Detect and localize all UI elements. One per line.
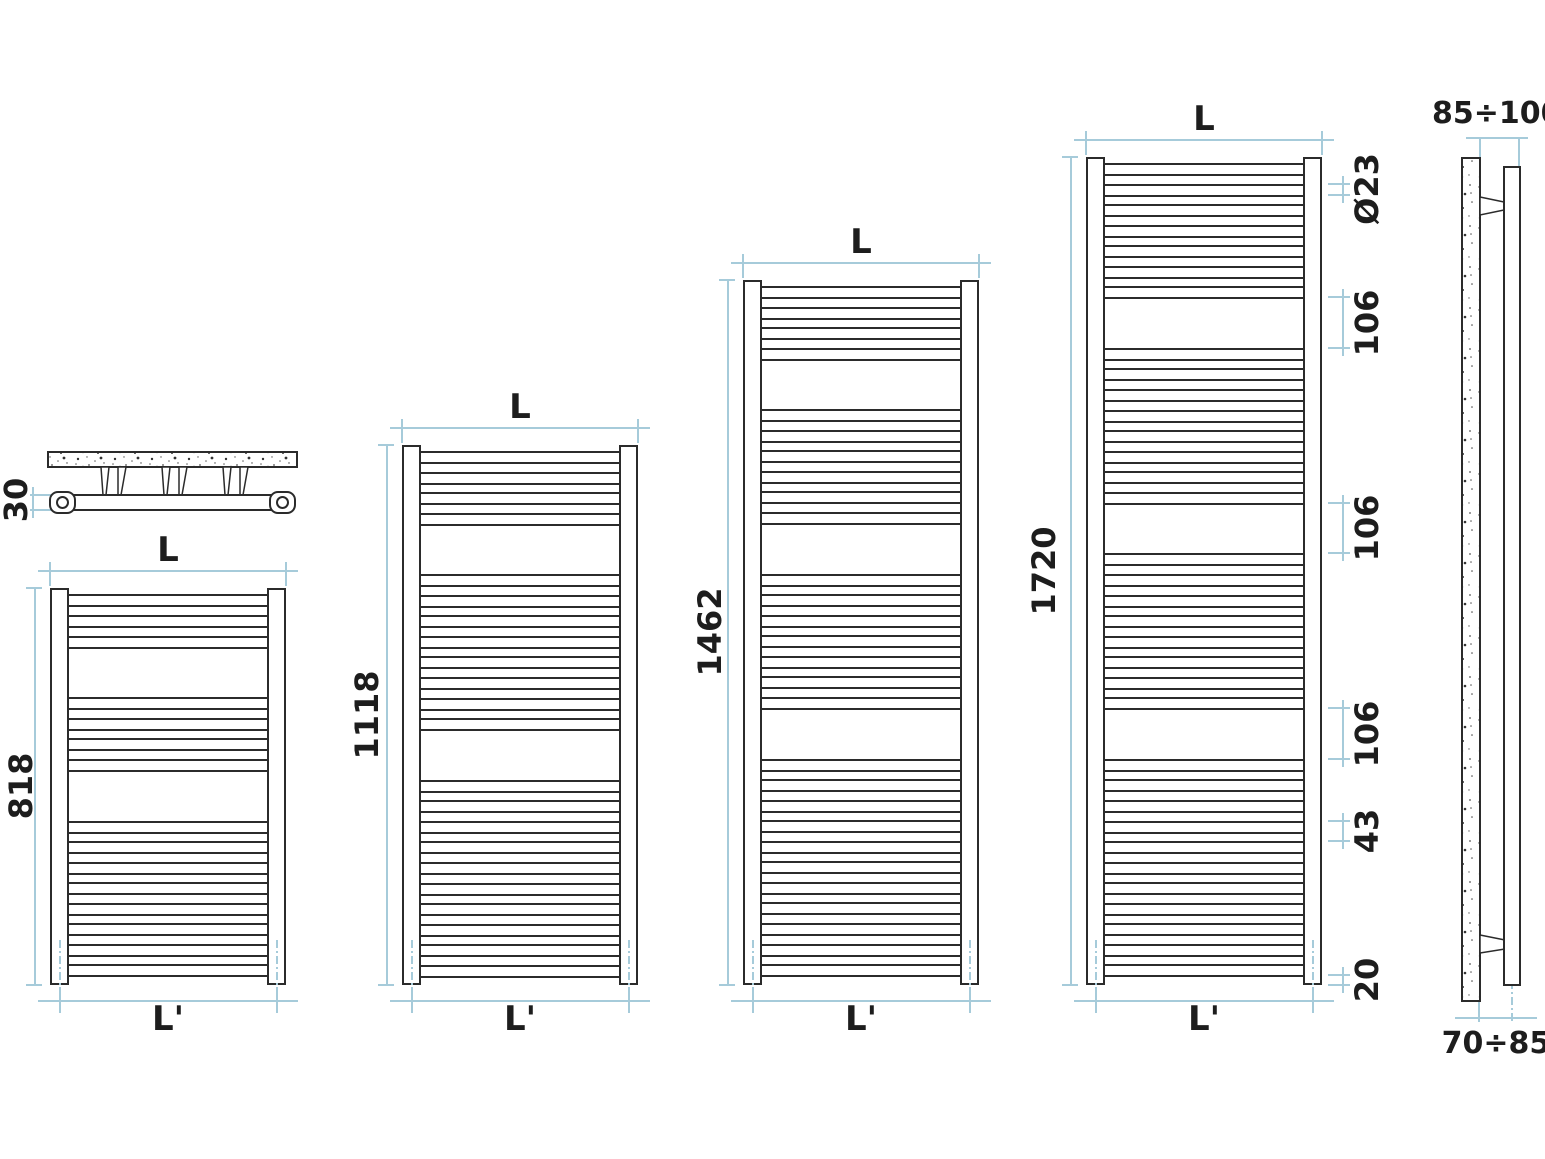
tube-line xyxy=(1103,626,1305,628)
height-dim-line xyxy=(1070,157,1072,985)
tube-line xyxy=(760,902,962,904)
plan-view-wall-mount xyxy=(0,440,320,540)
tube-line xyxy=(1103,800,1305,802)
tube-line xyxy=(760,461,962,463)
tube-line xyxy=(419,873,621,875)
tube-line xyxy=(760,800,962,802)
tube-line xyxy=(1103,779,1305,781)
tube-line xyxy=(67,708,269,710)
left-column xyxy=(50,588,69,985)
tube-line xyxy=(67,718,269,720)
tube-line xyxy=(67,903,269,905)
tube-line xyxy=(67,749,269,751)
tube-line xyxy=(67,934,269,936)
detail-dim-tick xyxy=(1328,194,1350,196)
tube-line xyxy=(419,677,621,679)
height-dim-tick xyxy=(26,587,42,589)
tube-line xyxy=(1103,677,1305,679)
tube-line xyxy=(760,297,962,299)
detail-dim-line xyxy=(1342,700,1344,767)
tube-line xyxy=(1103,553,1305,555)
tube-line xyxy=(67,770,269,772)
tube-line xyxy=(419,780,621,782)
tube-line xyxy=(419,903,621,905)
tube-line xyxy=(760,944,962,946)
tube-line xyxy=(1103,482,1305,484)
tube-line xyxy=(67,636,269,638)
tube-line xyxy=(760,646,962,648)
width-dimension-label: L xyxy=(50,530,286,570)
tube-line xyxy=(1103,647,1305,649)
tube-line xyxy=(419,626,621,628)
tube-line xyxy=(419,894,621,896)
width-dim-ext xyxy=(1085,131,1087,155)
width-dim-ext xyxy=(978,254,980,278)
column-centerline xyxy=(411,940,413,998)
tube-line xyxy=(419,606,621,608)
tube-line xyxy=(1103,759,1305,761)
tube-line xyxy=(1103,379,1305,381)
detail-dim-tick xyxy=(1328,840,1350,842)
tube-line xyxy=(67,832,269,834)
tube-line xyxy=(419,800,621,802)
wall-speckle-side xyxy=(1463,159,1479,1000)
tube-line xyxy=(419,729,621,731)
tube-line xyxy=(760,615,962,617)
left-column xyxy=(743,280,762,985)
height-dimension-label: 1118 xyxy=(347,655,387,775)
tube-line xyxy=(760,307,962,309)
width-dimension-label: L xyxy=(743,222,979,262)
left-column xyxy=(1086,157,1105,985)
tube-line xyxy=(67,862,269,864)
tube-line xyxy=(760,913,962,915)
tube-line xyxy=(760,872,962,874)
tube-line xyxy=(1103,688,1305,690)
right-column xyxy=(619,445,638,985)
bracket-top xyxy=(1480,197,1504,215)
tube-line xyxy=(760,923,962,925)
height-dimension-label: 818 xyxy=(1,726,41,846)
tube-line xyxy=(760,882,962,884)
tube-line xyxy=(419,667,621,669)
bracket-bottom xyxy=(1480,935,1505,953)
tube-line xyxy=(1103,882,1305,884)
height-dim-tick xyxy=(719,279,735,281)
tube-line xyxy=(419,862,621,864)
tube-line xyxy=(1103,286,1305,288)
width-dim-ext xyxy=(401,419,403,443)
detail-dim-tick xyxy=(1328,974,1350,976)
tube-line xyxy=(760,348,962,350)
tube-line xyxy=(760,708,962,710)
tube-line xyxy=(1103,852,1305,854)
tube-line xyxy=(1103,215,1305,217)
tube-line xyxy=(1103,636,1305,638)
tube-line xyxy=(1103,841,1305,843)
detail-dim-tick xyxy=(1328,758,1350,760)
column-centerline xyxy=(752,940,754,998)
tube-line xyxy=(1103,832,1305,834)
wall-speckle xyxy=(49,453,296,466)
tube-line xyxy=(1103,615,1305,617)
detail-dim-tick xyxy=(1328,820,1350,822)
tube-line xyxy=(1103,708,1305,710)
height-dim-tick xyxy=(378,984,394,986)
tube-line xyxy=(760,687,962,689)
tube-line xyxy=(1103,359,1305,361)
tube-line xyxy=(760,338,962,340)
tube-line xyxy=(1103,462,1305,464)
tube-line xyxy=(1103,368,1305,370)
tube-line xyxy=(419,574,621,576)
base-width-dim-line xyxy=(1074,1000,1334,1002)
tube-line xyxy=(1103,195,1305,197)
tube-line xyxy=(419,914,621,916)
tube-line xyxy=(67,893,269,895)
tube-line xyxy=(67,605,269,607)
tube-line xyxy=(760,430,962,432)
tube-line xyxy=(760,491,962,493)
tube-line xyxy=(760,841,962,843)
tube-line xyxy=(760,770,962,772)
tube-line xyxy=(1103,389,1305,391)
tube-line xyxy=(67,626,269,628)
width-dim-line xyxy=(390,427,650,429)
tube-line xyxy=(1103,245,1305,247)
mounting-brackets xyxy=(101,467,248,495)
detail-dim-line xyxy=(1342,967,1344,993)
tube-line xyxy=(419,503,621,505)
base-width-dim-line xyxy=(390,1000,650,1002)
tube-line xyxy=(419,944,621,946)
tube-line xyxy=(760,790,962,792)
radiator-dimension-drawing: 30 L L' L L' L L' L L' 818 1118 1462 172… xyxy=(0,0,1545,1159)
detail-dim-tick xyxy=(1328,707,1350,709)
tube-line xyxy=(760,574,962,576)
width-dim-ext xyxy=(1321,131,1323,155)
width-dim-ext xyxy=(742,254,744,278)
tube-line xyxy=(760,482,962,484)
tube-line xyxy=(419,656,621,658)
tube-line xyxy=(419,883,621,885)
tube-top-view xyxy=(62,495,285,510)
tube-line xyxy=(419,955,621,957)
tube-line xyxy=(419,451,621,453)
tube-line xyxy=(1103,204,1305,206)
tube-line xyxy=(419,472,621,474)
tube-line xyxy=(760,626,962,628)
tube-line xyxy=(760,811,962,813)
column-centerline xyxy=(1095,940,1097,998)
tube-line xyxy=(760,318,962,320)
side-elevation-view xyxy=(1440,90,1545,1070)
tube-line xyxy=(1103,811,1305,813)
tube-line xyxy=(419,698,621,700)
tube-line xyxy=(760,286,962,288)
width-dim-ext xyxy=(285,562,287,586)
tube-line xyxy=(760,934,962,936)
plan-depth-dimension-label: 30 xyxy=(0,440,36,560)
tube-line xyxy=(1103,277,1305,279)
tube-line xyxy=(419,688,621,690)
tube-line xyxy=(67,964,269,966)
tube-line xyxy=(1103,667,1305,669)
detail-dim-line xyxy=(1342,495,1344,562)
width-dim-ext xyxy=(49,562,51,586)
radiator-front-view-1720: L L' xyxy=(1086,157,1322,985)
base-width-dimension-label: L' xyxy=(743,999,979,1039)
tube-line xyxy=(67,821,269,823)
tube-line xyxy=(1103,903,1305,905)
width-dimension-label: L xyxy=(1086,99,1322,139)
tube-line xyxy=(419,718,621,720)
detail-dim-tick xyxy=(1328,552,1350,554)
tube-line xyxy=(1103,503,1305,505)
tube-line xyxy=(67,594,269,596)
width-dim-line xyxy=(1074,139,1334,141)
tube-line xyxy=(419,965,621,967)
tube-line xyxy=(1103,656,1305,658)
base-width-dimension-label: L' xyxy=(50,999,286,1039)
tube-line xyxy=(760,759,962,761)
tube-line xyxy=(1103,893,1305,895)
tube-line xyxy=(419,841,621,843)
tube-line xyxy=(760,359,962,361)
group-gap-dimension-label: 106 xyxy=(1347,468,1387,588)
tube-line xyxy=(1103,451,1305,453)
tube-line xyxy=(419,832,621,834)
tube-line xyxy=(67,615,269,617)
right-column xyxy=(1303,157,1322,985)
bottom-offset-dimension-label: 20 xyxy=(1347,920,1387,1040)
tube-line xyxy=(760,327,962,329)
tube-line xyxy=(67,882,269,884)
wall-to-front-dimension-label: 85÷100 xyxy=(1432,96,1545,131)
group-gap-dimension-label: 106 xyxy=(1347,263,1387,383)
tube-line xyxy=(760,512,962,514)
tube-line xyxy=(760,585,962,587)
tube-line xyxy=(419,791,621,793)
tube-line xyxy=(419,585,621,587)
tube-line xyxy=(760,955,962,957)
tube-eyelet-left xyxy=(57,497,68,508)
tube-line xyxy=(1103,923,1305,925)
left-column xyxy=(402,445,421,985)
tube-line xyxy=(419,811,621,813)
wall-to-axis-dimension-label: 70÷85 xyxy=(1436,1026,1545,1061)
tube-line xyxy=(419,821,621,823)
width-dimension-label: L xyxy=(402,387,638,427)
tube-line xyxy=(67,873,269,875)
height-dim-tick xyxy=(378,444,394,446)
column-centerline xyxy=(969,940,971,998)
tube-line xyxy=(1103,410,1305,412)
height-dim-tick xyxy=(719,984,735,986)
tube-line xyxy=(1103,174,1305,176)
tube-line xyxy=(67,647,269,649)
tube-line xyxy=(1103,348,1305,350)
tube-line xyxy=(1103,225,1305,227)
column-centerline xyxy=(628,940,630,998)
radiator-front-view-818: L L' xyxy=(50,588,286,985)
right-column xyxy=(267,588,286,985)
tube-line xyxy=(1103,606,1305,608)
tube-line xyxy=(1103,236,1305,238)
tube-pitch-dimension-label: 43 xyxy=(1347,771,1387,891)
height-dim-tick xyxy=(1062,984,1078,986)
tube-line xyxy=(419,709,621,711)
tube-line xyxy=(760,502,962,504)
tube-line xyxy=(1103,944,1305,946)
tube-line xyxy=(1103,163,1305,165)
tube-line xyxy=(1103,564,1305,566)
tube-line xyxy=(760,471,962,473)
tube-line xyxy=(1103,585,1305,587)
tube-diameter-dimension-label: Ø23 xyxy=(1347,129,1387,249)
tube-line xyxy=(1103,441,1305,443)
detail-dim-line xyxy=(1342,813,1344,850)
base-width-dimension-label: L' xyxy=(402,999,638,1039)
column-centerline xyxy=(1312,940,1314,998)
height-dim-tick xyxy=(26,984,42,986)
tube-line xyxy=(760,656,962,658)
right-column xyxy=(960,280,979,985)
detail-dim-line xyxy=(1342,289,1344,356)
tube-line xyxy=(419,524,621,526)
width-dim-ext xyxy=(637,419,639,443)
tube-line xyxy=(419,852,621,854)
tube-line xyxy=(1103,975,1305,977)
tube-line xyxy=(760,523,962,525)
height-dimension-label: 1720 xyxy=(1024,511,1064,631)
tube-line xyxy=(760,964,962,966)
tube-line xyxy=(1103,421,1305,423)
tube-line xyxy=(67,841,269,843)
tube-line xyxy=(1103,770,1305,772)
tube-line xyxy=(67,729,269,731)
tube-line xyxy=(67,697,269,699)
tube-line xyxy=(1103,873,1305,875)
tube-line xyxy=(1103,914,1305,916)
tube-line xyxy=(67,944,269,946)
tube-line xyxy=(419,462,621,464)
tube-line xyxy=(1103,595,1305,597)
tube-line xyxy=(67,955,269,957)
tube-line xyxy=(760,667,962,669)
base-width-dim-line xyxy=(38,1000,298,1002)
tube-line xyxy=(1103,862,1305,864)
tube-line xyxy=(1103,574,1305,576)
tube-line xyxy=(1103,790,1305,792)
tube-line xyxy=(419,647,621,649)
tube-line xyxy=(419,513,621,515)
tube-line xyxy=(1103,934,1305,936)
tube-line xyxy=(760,779,962,781)
tube-line xyxy=(1103,256,1305,258)
column-centerline xyxy=(59,940,61,998)
tube-line xyxy=(760,441,962,443)
tube-line xyxy=(1103,400,1305,402)
tube-line xyxy=(419,935,621,937)
tube-line xyxy=(760,676,962,678)
tube-line xyxy=(419,595,621,597)
tube-line xyxy=(760,420,962,422)
tube-line xyxy=(760,861,962,863)
tube-line xyxy=(1103,266,1305,268)
tube-line xyxy=(419,483,621,485)
tube-line xyxy=(419,976,621,978)
tube-line xyxy=(419,492,621,494)
tube-line xyxy=(760,697,962,699)
tube-line xyxy=(760,635,962,637)
width-dim-line xyxy=(38,570,298,572)
tube-line xyxy=(1103,430,1305,432)
column-centerline xyxy=(276,940,278,998)
height-dimension-label: 1462 xyxy=(690,572,730,692)
tube-line xyxy=(1103,697,1305,699)
base-width-dimension-label: L' xyxy=(1086,999,1322,1039)
tube-eyelet-right xyxy=(277,497,288,508)
tube-line xyxy=(1103,955,1305,957)
detail-dim-tick xyxy=(1328,502,1350,504)
height-dim-tick xyxy=(1062,156,1078,158)
tube-line xyxy=(1103,492,1305,494)
tube-line xyxy=(760,605,962,607)
radiator-side-column xyxy=(1504,167,1520,985)
tube-line xyxy=(67,852,269,854)
tube-line xyxy=(1103,964,1305,966)
detail-dim-tick xyxy=(1328,347,1350,349)
tube-line xyxy=(419,924,621,926)
tube-line xyxy=(760,409,962,411)
radiator-front-view-1118: L L' xyxy=(402,445,638,985)
tube-line xyxy=(760,975,962,977)
tube-line xyxy=(67,975,269,977)
base-width-dim-line xyxy=(731,1000,991,1002)
tube-line xyxy=(760,852,962,854)
detail-dim-line xyxy=(1342,176,1344,203)
tube-line xyxy=(67,759,269,761)
tube-line xyxy=(67,914,269,916)
detail-dim-tick xyxy=(1328,296,1350,298)
tube-line xyxy=(67,738,269,740)
detail-dim-tick xyxy=(1328,183,1350,185)
tube-line xyxy=(1103,297,1305,299)
tube-line xyxy=(760,450,962,452)
tube-line xyxy=(67,923,269,925)
tube-line xyxy=(1103,471,1305,473)
tube-line xyxy=(419,615,621,617)
width-dim-line xyxy=(731,262,991,264)
tube-line xyxy=(760,831,962,833)
tube-line xyxy=(760,893,962,895)
tube-line xyxy=(1103,821,1305,823)
radiator-front-view-1462: L L' xyxy=(743,280,979,985)
tube-line xyxy=(419,636,621,638)
tube-line xyxy=(1103,184,1305,186)
tube-line xyxy=(760,594,962,596)
tube-line xyxy=(760,820,962,822)
detail-dim-tick xyxy=(1328,984,1350,986)
